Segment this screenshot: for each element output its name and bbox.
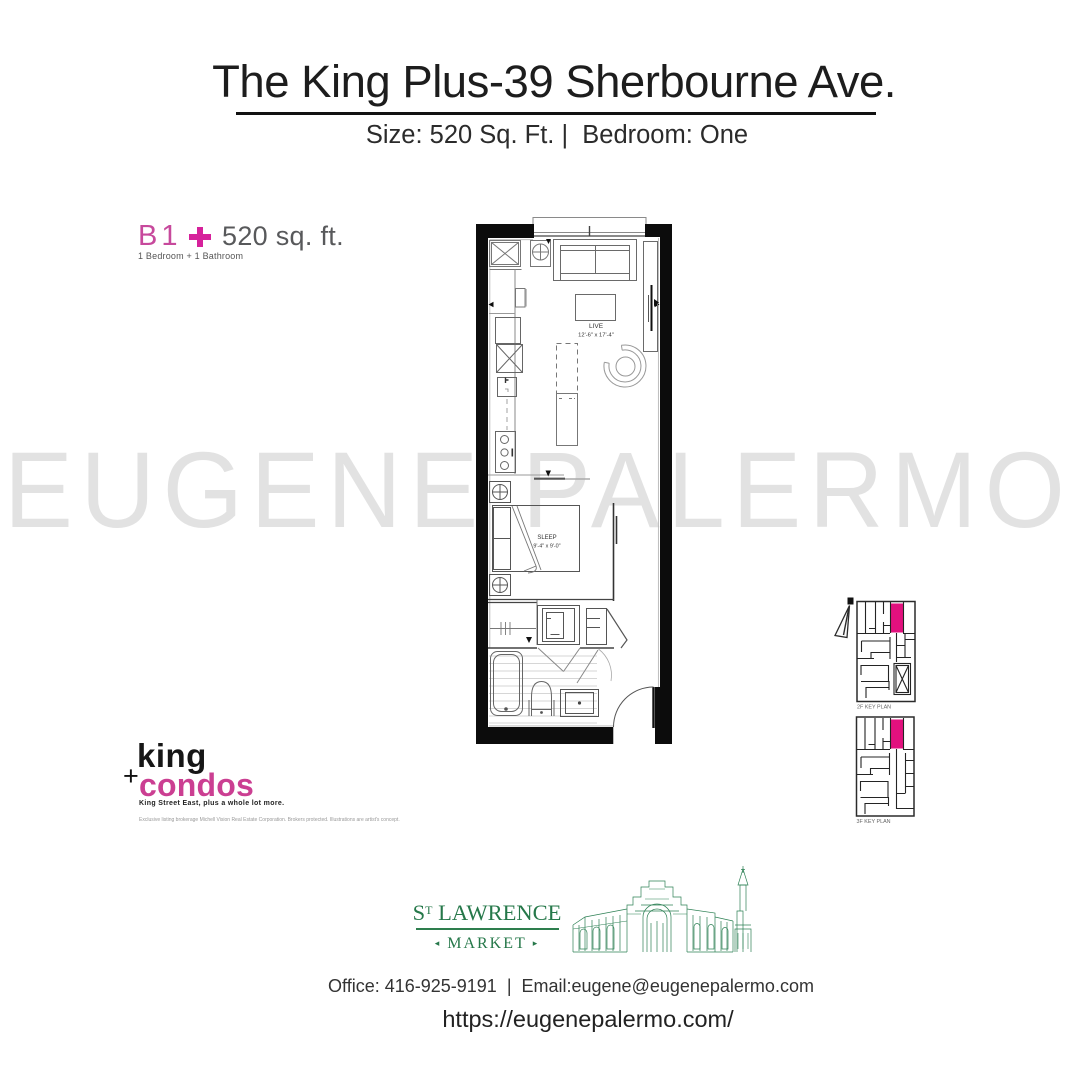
svg-text:9'-4" x 9'-0": 9'-4" x 9'-0" <box>533 544 560 550</box>
svg-text:LIVE: LIVE <box>589 323 604 330</box>
svg-text:3F KEY PLAN: 3F KEY PLAN <box>857 819 891 825</box>
svg-text:2F KEY PLAN: 2F KEY PLAN <box>857 705 891 711</box>
svg-text:12'-6" x 17'-4": 12'-6" x 17'-4" <box>578 333 614 339</box>
svg-text:SLEEP: SLEEP <box>537 535 556 541</box>
